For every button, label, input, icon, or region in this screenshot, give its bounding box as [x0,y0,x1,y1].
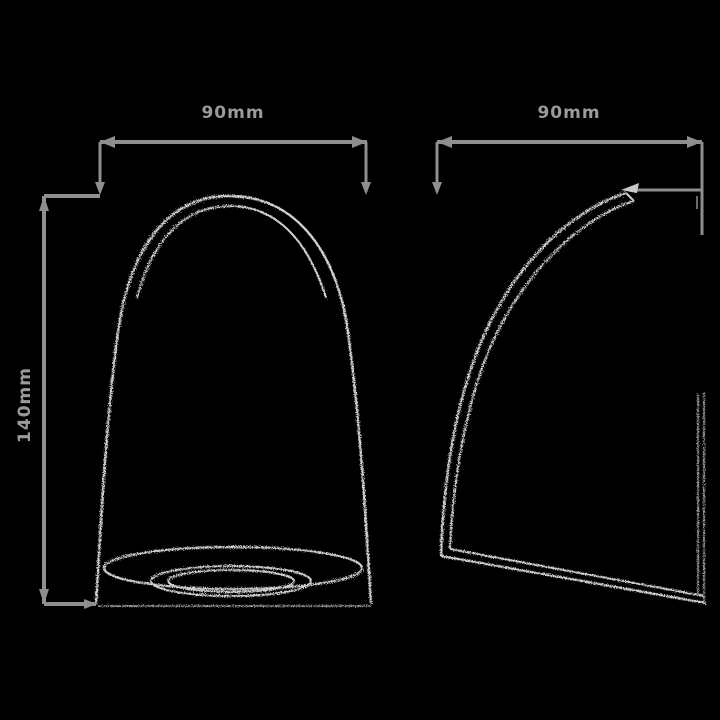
front-view-outline [96,196,371,606]
side-front-curve-inner [450,201,633,549]
side-bottom-edge-inner [450,549,704,596]
front-bell-silhouette [96,196,371,604]
front-width-dimension [95,136,371,195]
front-height-dimension [39,196,100,609]
technical-drawing-canvas: 90mm 90mm 140mm [0,0,720,720]
side-view-outline [441,193,706,603]
side-bottom-edge-outer [441,556,706,603]
side-width-dimension-label: 90mm [469,103,669,123]
side-top-cap [626,193,634,201]
front-height-dimension-label: 140mm [15,305,35,505]
front-width-dimension-label: 90mm [133,103,333,123]
dimension-lines [39,136,703,609]
side-width-dimension [432,136,703,235]
side-front-curve-outer [441,193,626,556]
front-base-rim-ellipse [104,547,362,589]
